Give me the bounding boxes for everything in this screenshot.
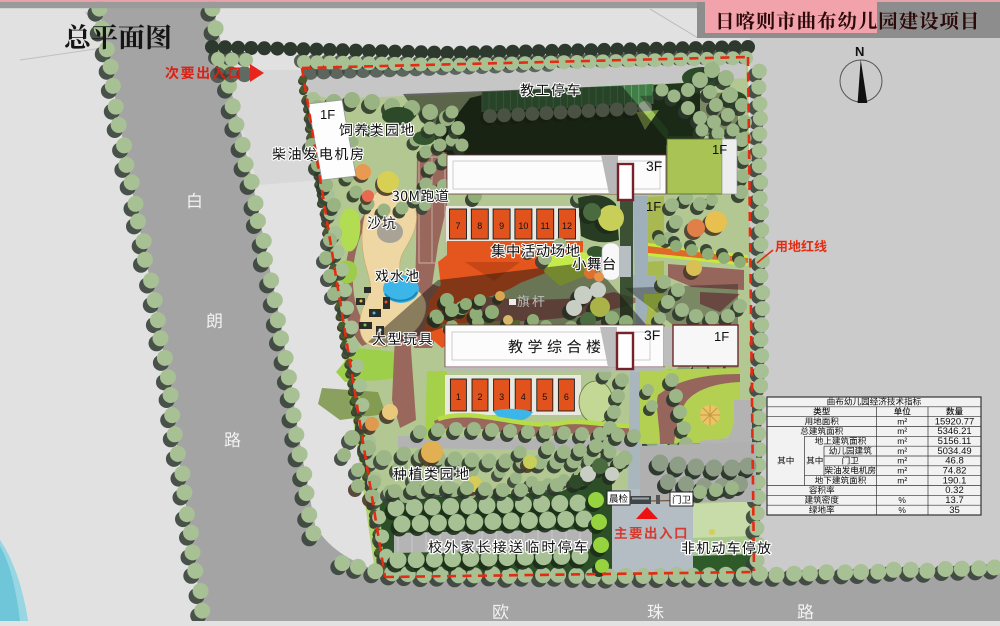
svg-text:%: % — [898, 505, 906, 515]
svg-text:N: N — [855, 44, 864, 59]
svg-text:35: 35 — [949, 505, 960, 516]
svg-text:m²: m² — [897, 416, 907, 426]
svg-text:12: 12 — [562, 221, 572, 231]
svg-text:1F: 1F — [646, 199, 661, 214]
svg-text:m²: m² — [897, 446, 907, 456]
svg-text:3F: 3F — [644, 327, 660, 343]
svg-text:6: 6 — [564, 392, 569, 402]
svg-text:2: 2 — [477, 392, 482, 402]
svg-text:8: 8 — [477, 221, 482, 231]
svg-text:m²: m² — [897, 436, 907, 446]
svg-text:1: 1 — [456, 392, 461, 402]
svg-text:m²: m² — [897, 466, 907, 476]
svg-text:m²: m² — [897, 426, 907, 436]
svg-text:m²: m² — [897, 456, 907, 466]
svg-text:9: 9 — [499, 221, 504, 231]
svg-text:7: 7 — [455, 221, 460, 231]
svg-text:%: % — [898, 495, 906, 505]
svg-text:3F: 3F — [646, 158, 662, 174]
svg-text:1F: 1F — [714, 329, 729, 344]
svg-text:1F: 1F — [320, 107, 335, 122]
svg-text:10: 10 — [518, 221, 528, 231]
svg-text:3: 3 — [499, 392, 504, 402]
svg-text:1F: 1F — [712, 142, 727, 157]
svg-text:5: 5 — [542, 392, 547, 402]
svg-text:m²: m² — [897, 475, 907, 485]
svg-text:4: 4 — [521, 392, 526, 402]
svg-text:11: 11 — [541, 221, 550, 231]
